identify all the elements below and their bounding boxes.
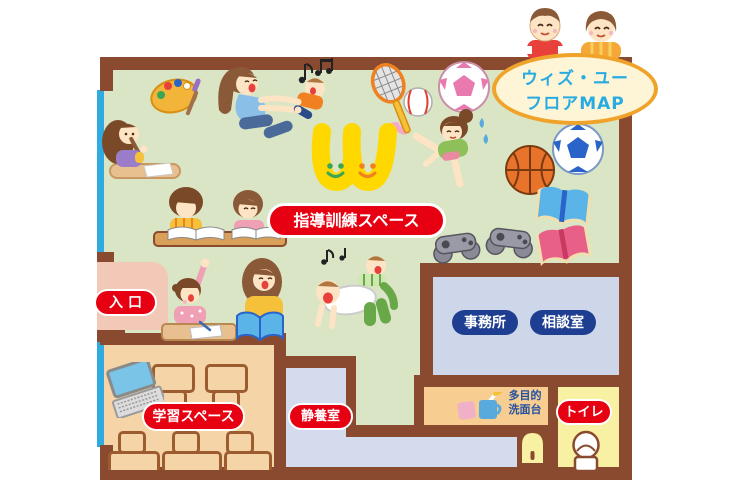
- game-controller-icon: [484, 223, 536, 259]
- soccer-ball-blue-icon: [550, 122, 608, 177]
- desk: [108, 451, 160, 470]
- music-notes-icon: [321, 248, 346, 265]
- wall-washstand-left: [414, 387, 424, 427]
- title-line1: ウィズ・ユー: [521, 64, 629, 89]
- label-training-space: 指導訓練スペース: [267, 203, 446, 238]
- label-washstand: 多目的 洗面台: [502, 389, 548, 417]
- wall-corner-topleft: [100, 57, 113, 91]
- label-toilet: トイレ: [556, 399, 612, 425]
- floor-map: ウィズ・ユー フロアMAP 指導訓練スペース 入口 学習スペース 静養室 事務所…: [0, 0, 740, 490]
- hand-raising-girl-teacher-illustration: [160, 250, 300, 350]
- label-learning-space: 学習スペース: [142, 402, 245, 431]
- wall-entrance-top-stub: [97, 252, 114, 262]
- arch-door: [517, 427, 548, 467]
- label-consultation-room: 相談室: [530, 310, 596, 335]
- playing-boys-illustration: [298, 248, 406, 334]
- title-bubble: ウィズ・ユー フロアMAP: [492, 53, 658, 125]
- label-entrance: 入口: [94, 289, 157, 316]
- wall-office-left: [420, 277, 433, 375]
- toilet-icon: [566, 430, 606, 474]
- wall-toilet-left: [548, 387, 558, 467]
- desk: [205, 364, 248, 393]
- recorder-girl-illustration: [92, 108, 187, 183]
- wall-learning-right: [274, 333, 286, 467]
- desk: [224, 451, 272, 470]
- window-strip-lower: [97, 342, 104, 447]
- exercise-girl-illustration: [402, 100, 507, 192]
- label-washstand-line2: 洗面台: [502, 403, 548, 417]
- wall-office-bottom: [414, 375, 632, 387]
- title-line2: フロアMAP: [525, 89, 625, 114]
- peeking-kids-illustration: [514, 2, 636, 60]
- corridor: [286, 437, 520, 467]
- label-washstand-line1: 多目的: [502, 389, 548, 403]
- label-rest-room: 静養室: [288, 403, 353, 430]
- wall-office-top: [420, 263, 632, 277]
- cups-icon: [455, 392, 503, 426]
- open-book-pink-icon: [534, 222, 594, 272]
- label-office: 事務所: [452, 310, 518, 335]
- desk: [162, 451, 222, 470]
- wall-rest-top: [274, 356, 356, 368]
